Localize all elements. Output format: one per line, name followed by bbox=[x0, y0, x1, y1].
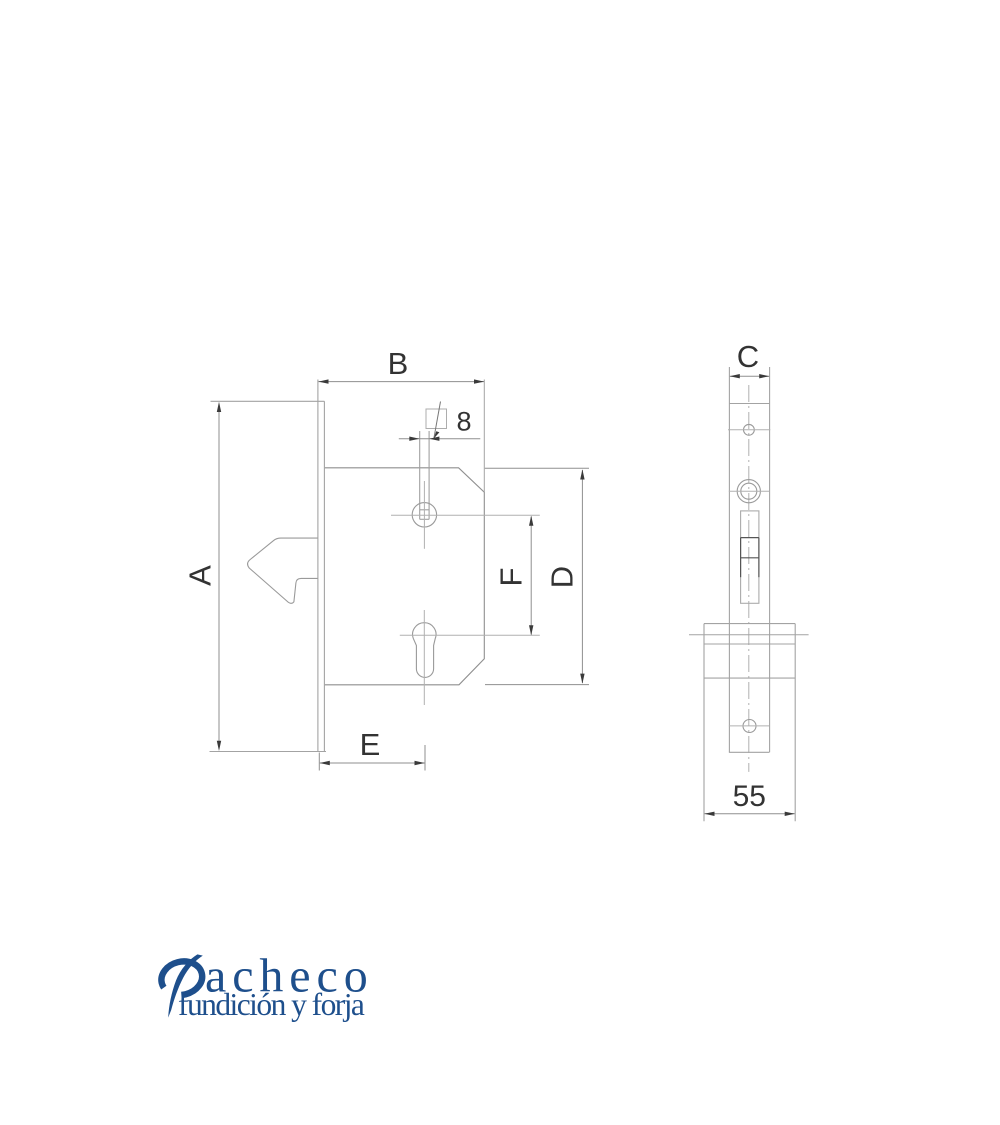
svg-text:D: D bbox=[545, 566, 580, 588]
svg-text:B: B bbox=[388, 346, 409, 381]
svg-text:8: 8 bbox=[456, 407, 471, 437]
svg-text:E: E bbox=[360, 727, 381, 762]
svg-text:C: C bbox=[737, 339, 759, 374]
svg-text:A: A bbox=[183, 565, 218, 586]
svg-text:F: F bbox=[494, 568, 529, 587]
svg-text:fundición y forja: fundición y forja bbox=[178, 987, 365, 1022]
svg-text:55: 55 bbox=[733, 780, 766, 813]
